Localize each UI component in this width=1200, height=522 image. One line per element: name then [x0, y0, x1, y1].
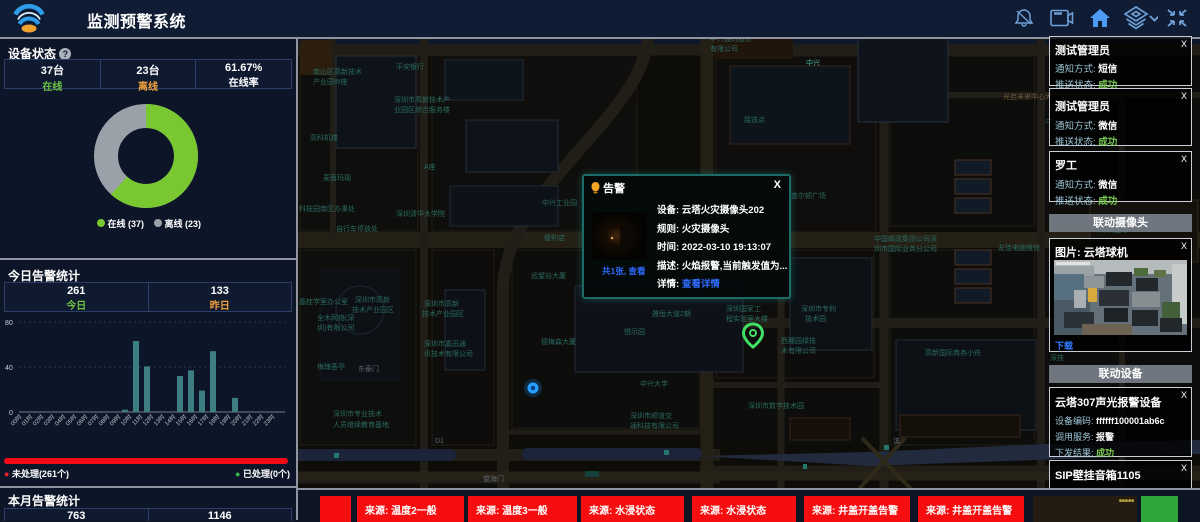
svg-text:技术产业园区: 技术产业园区 — [422, 309, 464, 318]
svg-text:望海门: 望海门 — [483, 474, 504, 483]
svg-text:深圳市数字技术园: 深圳市数字技术园 — [748, 401, 804, 410]
svg-text:有限公司: 有限公司 — [710, 44, 738, 53]
svg-text:自行车停放处: 自行车停放处 — [336, 224, 378, 233]
svg-text:A座: A座 — [424, 162, 436, 171]
svg-text:圳)有限公司: 圳)有限公司 — [317, 323, 354, 332]
svg-text:高新国际商务小舟: 高新国际商务小舟 — [925, 348, 981, 357]
svg-text:21时: 21时 — [240, 413, 255, 428]
svg-text:远望谷大厦: 远望谷大厦 — [531, 271, 566, 280]
svg-text:便利店: 便利店 — [544, 233, 565, 242]
svg-text:全木网络(深: 全木网络(深 — [317, 313, 354, 322]
svg-text:19时: 19时 — [218, 413, 233, 428]
svg-text:01时: 01时 — [20, 413, 35, 428]
svg-text:16时: 16时 — [185, 413, 200, 428]
svg-text:人员继续教育基地: 人员继续教育基地 — [333, 420, 389, 429]
svg-text:08时: 08时 — [97, 413, 112, 428]
svg-text:科技园南区办事处: 科技园南区办事处 — [299, 204, 355, 213]
svg-text:接送点: 接送点 — [744, 115, 765, 124]
svg-text:南山区高新技术: 南山区高新技术 — [313, 67, 362, 76]
svg-text:光启未来中心大: 光启未来中心大 — [1003, 92, 1052, 101]
svg-text:11时: 11时 — [130, 413, 144, 427]
svg-text:梅瑰荟亭: 梅瑰荟亭 — [317, 362, 345, 371]
svg-text:深圳清华大学院: 深圳清华大学院 — [396, 209, 445, 218]
svg-text:12时: 12时 — [141, 413, 156, 428]
svg-text:20时: 20时 — [229, 413, 244, 428]
svg-text:18时: 18时 — [207, 413, 222, 428]
svg-text:10时: 10时 — [119, 413, 134, 428]
svg-text:高科机楼: 高科机楼 — [310, 133, 338, 142]
svg-text:0: 0 — [9, 410, 13, 417]
svg-text:深圳市高新: 深圳市高新 — [355, 295, 390, 304]
svg-text:中兴: 中兴 — [806, 58, 820, 67]
svg-text:程实验室大楼: 程实验室大楼 — [726, 314, 768, 323]
svg-text:友佳电脑维修: 友佳电脑维修 — [998, 243, 1040, 252]
svg-text:德梅森大厦: 德梅森大厦 — [541, 337, 576, 346]
svg-text:晶桂学室办公室: 晶桂学室办公室 — [299, 297, 348, 306]
svg-text:深圳市高新: 深圳市高新 — [424, 299, 459, 308]
svg-text:通科技有限公司: 通科技有限公司 — [630, 421, 679, 430]
svg-text:中兴大学: 中兴大学 — [640, 379, 668, 388]
svg-text:15时: 15时 — [174, 413, 189, 428]
svg-text:13时: 13时 — [152, 413, 167, 428]
svg-text:滨: 滨 — [893, 436, 900, 445]
svg-text:中国邮政集团公司深: 中国邮政集团公司深 — [874, 234, 937, 243]
svg-text:40: 40 — [5, 365, 13, 372]
svg-text:讯技术有限公司: 讯技术有限公司 — [424, 349, 473, 358]
svg-text:业园区综合服务楼: 业园区综合服务楼 — [394, 105, 450, 114]
svg-text:06时: 06时 — [75, 413, 90, 428]
svg-text:07时: 07时 — [86, 413, 101, 428]
svg-text:05时: 05时 — [64, 413, 79, 428]
svg-text:悦示园: 悦示园 — [624, 327, 645, 336]
svg-text:深圳市顺道交: 深圳市顺道交 — [630, 411, 672, 420]
svg-text:深圳市高新技术产: 深圳市高新技术产 — [394, 95, 450, 104]
svg-text:02时: 02时 — [31, 413, 46, 428]
svg-text:22时: 22时 — [251, 413, 266, 428]
svg-text:17时: 17时 — [196, 413, 211, 428]
svg-text:深圳市嘉迅通: 深圳市嘉迅通 — [424, 339, 466, 348]
svg-text:技术园: 技术园 — [805, 314, 826, 323]
svg-text:04时: 04时 — [53, 413, 68, 428]
svg-text:圳市国际业务分公司: 圳市国际业务分公司 — [874, 244, 937, 253]
svg-text:术有限公司: 术有限公司 — [781, 346, 816, 355]
svg-text:麦茵玛瑙: 麦茵玛瑙 — [323, 173, 351, 182]
svg-text:中兴工业园: 中兴工业园 — [542, 198, 577, 207]
svg-text:深技: 深技 — [1050, 353, 1064, 362]
svg-text:晟恒大道2期: 晟恒大道2期 — [652, 309, 691, 318]
svg-text:产业园W座: 产业园W座 — [313, 77, 348, 86]
svg-text:技术产业园区: 技术产业园区 — [352, 305, 394, 314]
svg-text:23时: 23时 — [262, 413, 277, 428]
svg-text:东泰门: 东泰门 — [358, 364, 379, 373]
svg-text:09时: 09时 — [108, 413, 123, 428]
svg-text:深圳市专利: 深圳市专利 — [801, 304, 836, 313]
svg-text:80: 80 — [5, 320, 13, 327]
svg-text:深圳国家工: 深圳国家工 — [726, 304, 761, 313]
svg-text:深圳市专业技术: 深圳市专业技术 — [333, 409, 382, 418]
svg-text:14时: 14时 — [163, 413, 178, 428]
svg-text:西麓园绿技: 西麓园绿技 — [781, 336, 816, 345]
svg-text:D1: D1 — [435, 438, 444, 445]
svg-text:平安银行: 平安银行 — [396, 62, 424, 71]
svg-text:03时: 03时 — [42, 413, 57, 428]
svg-text:中兴通讯股份: 中兴通讯股份 — [710, 39, 752, 43]
svg-text:查尔顿广场: 查尔顿广场 — [791, 191, 826, 200]
